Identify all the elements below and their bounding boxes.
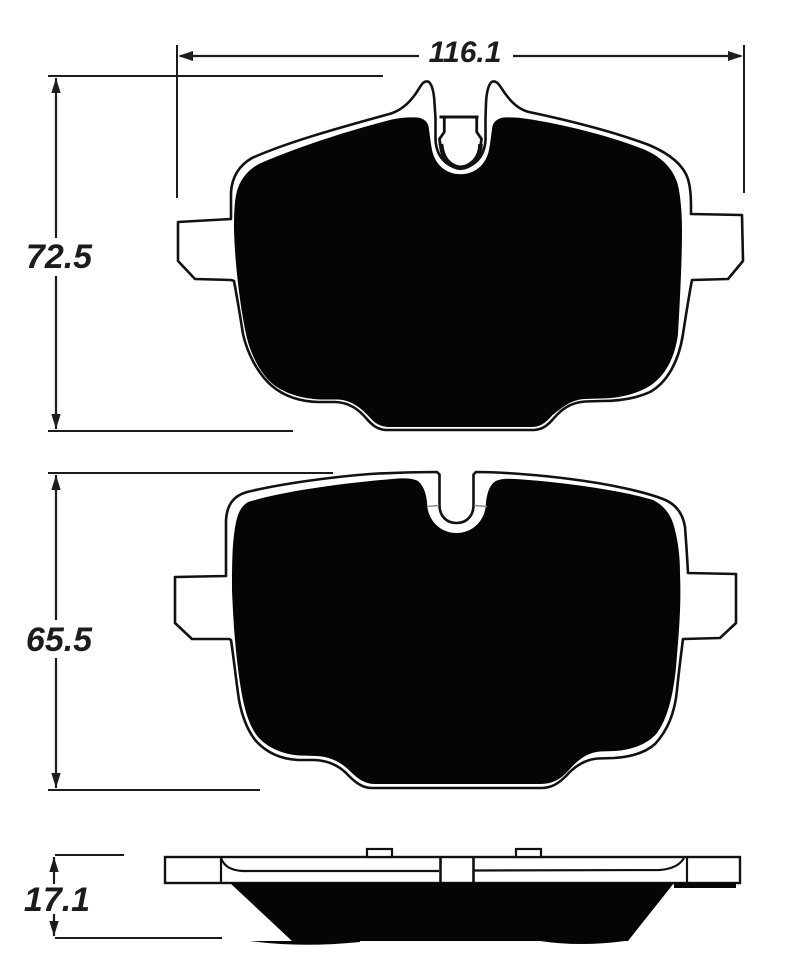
svg-text:72.5: 72.5 (26, 238, 93, 276)
svg-text:116.1: 116.1 (429, 36, 502, 69)
svg-text:65.5: 65.5 (26, 621, 93, 659)
svg-text:17.1: 17.1 (24, 881, 90, 919)
